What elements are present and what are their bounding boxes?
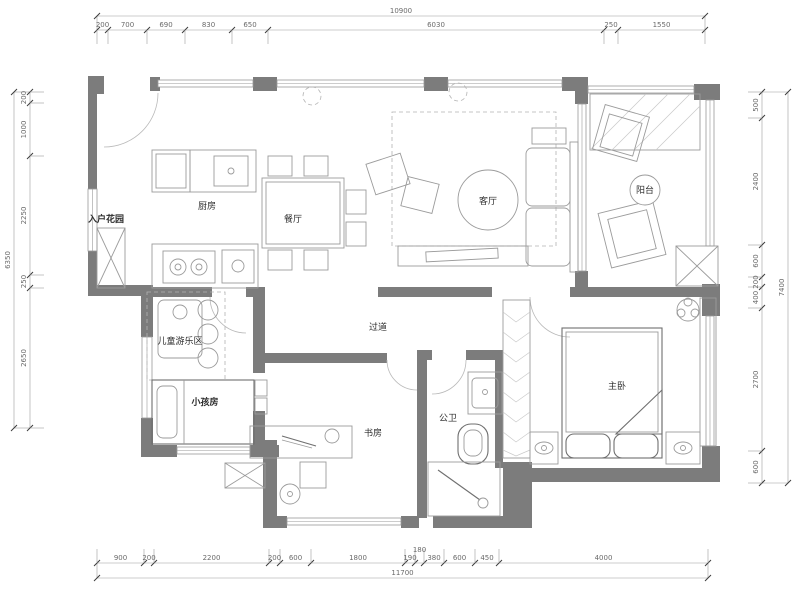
room-label-master-bedroom: 主卧 (608, 380, 626, 392)
kids-room-set (147, 292, 267, 444)
dimension-text: 1550 (653, 21, 671, 29)
dimension-text: 450 (480, 554, 493, 562)
window (277, 80, 424, 87)
stool (300, 462, 326, 488)
window (578, 104, 586, 271)
dimension-text: 200 (142, 554, 155, 562)
dimension-text: 250 (20, 275, 28, 288)
dimension-text: 500 (752, 98, 760, 111)
bath-door-arc (432, 360, 466, 394)
room-label-study: 书房 (364, 427, 382, 439)
dimension-text: 1000 (20, 121, 28, 139)
dimension-text: 2400 (752, 173, 760, 191)
chair (304, 156, 328, 176)
dimension-text: 700 (121, 21, 134, 29)
basin (472, 378, 498, 408)
dimension-text: 650 (243, 21, 256, 29)
dimension-text: 200 (268, 554, 281, 562)
dimension-text: 200 (752, 275, 760, 288)
dimension-text: 2250 (20, 207, 28, 225)
floor-lamp (280, 484, 300, 504)
room-label-entry-garden: 入户花园 (87, 213, 124, 225)
dimension-text: 200 (96, 21, 109, 29)
chair (268, 250, 292, 270)
kitchen-fixtures (152, 150, 258, 288)
room-label-guest-bath: 公卫 (439, 413, 457, 424)
room-label-living-room: 客厅 (479, 195, 497, 207)
room-labels: 入户花园厨房餐厅客厅阳台儿童游乐区小孩房过道书房公卫主卧 (87, 184, 654, 439)
blanket-fold (616, 390, 662, 434)
ceiling-light (303, 87, 321, 105)
entry-door-arc (104, 93, 158, 147)
door-panel (255, 380, 267, 396)
sofa-seat (526, 208, 570, 266)
room-label-kids-room: 小孩房 (190, 396, 218, 408)
dining-set (262, 156, 366, 270)
dimension-text: 900 (114, 554, 127, 562)
door-swings (104, 93, 570, 394)
balcony-chair (598, 200, 666, 268)
window (706, 100, 714, 246)
window (706, 316, 714, 446)
window (158, 80, 253, 87)
dimension-text: 600 (453, 554, 466, 562)
room-label-kitchen: 厨房 (198, 200, 216, 212)
dimension-text: 600 (289, 554, 302, 562)
dimension-text: 830 (202, 21, 215, 29)
play-stool (198, 300, 218, 320)
shower-head (478, 498, 488, 508)
overall-dimension: 6350 (4, 251, 12, 269)
toy-cabinet (158, 300, 202, 358)
entry-garden-set (97, 228, 125, 288)
overall-dimension: 11700 (391, 569, 413, 577)
sink-faucet (228, 168, 234, 174)
room-label-kids-play-area: 儿童游乐区 (157, 335, 202, 347)
master-bedroom-set (530, 298, 716, 464)
master-door-arc (530, 297, 570, 337)
window (588, 86, 694, 93)
dining-table (262, 178, 344, 248)
window (177, 447, 250, 454)
chair (304, 250, 328, 270)
dimension-text: 2200 (203, 554, 221, 562)
balcony-tile (590, 94, 700, 150)
dimension-text: 2700 (752, 371, 760, 389)
dimension-text: 200 (20, 91, 28, 104)
tv-cabinet (398, 246, 528, 266)
chair (346, 190, 366, 214)
shower-rod (438, 470, 480, 500)
tv (426, 248, 498, 262)
overall-dimension: 10900 (390, 7, 412, 15)
dimension-text: 380 (427, 554, 440, 562)
armchair (401, 177, 439, 214)
pillow (157, 386, 177, 438)
room-label-dining-room: 餐厅 (284, 213, 302, 225)
study-door-arc (387, 360, 417, 390)
pillow (614, 434, 658, 458)
kitchen-sink (232, 260, 244, 272)
dimension-text: 600 (752, 254, 760, 267)
dimension-text: 180 (413, 546, 426, 554)
dimension-text: 4000 (595, 554, 613, 562)
dimension-text: 1800 (349, 554, 367, 562)
room-label-hallway: 过道 (369, 321, 387, 333)
pillow (566, 434, 610, 458)
washing-machine (676, 246, 718, 286)
dimension-text: 250 (604, 21, 617, 29)
dimension-text: 690 (159, 21, 172, 29)
single-bed (152, 380, 254, 444)
lamp (674, 442, 692, 454)
lamp (535, 442, 553, 454)
nightstand (530, 432, 558, 464)
double-bed (562, 328, 662, 458)
window-box (225, 463, 265, 488)
hallway-closet (503, 300, 530, 458)
chair (346, 222, 366, 246)
armchair (366, 153, 410, 195)
chair (268, 156, 292, 176)
floor-plan-drawing: 2007006908306506030250155010900900200220… (0, 0, 809, 607)
play-stool (198, 348, 218, 368)
window (287, 518, 401, 525)
dimension-text: 190 (403, 554, 416, 562)
walls (88, 76, 720, 528)
plant (677, 298, 699, 321)
side-table (532, 128, 566, 144)
room-label-balcony: 阳台 (636, 184, 654, 196)
floor-plan-canvas: 2007006908306506030250155010900900200220… (0, 0, 809, 607)
sofa-seat (526, 148, 570, 206)
dimension-text: 600 (752, 460, 760, 473)
sofa-back (570, 142, 578, 272)
dimension-text: 2650 (20, 349, 28, 367)
dimension-text: 400 (752, 291, 760, 304)
dimension-text: 6030 (427, 21, 445, 29)
overall-dimension: 7400 (778, 279, 786, 297)
nightstand (666, 432, 700, 464)
desk-lamp (325, 429, 339, 443)
